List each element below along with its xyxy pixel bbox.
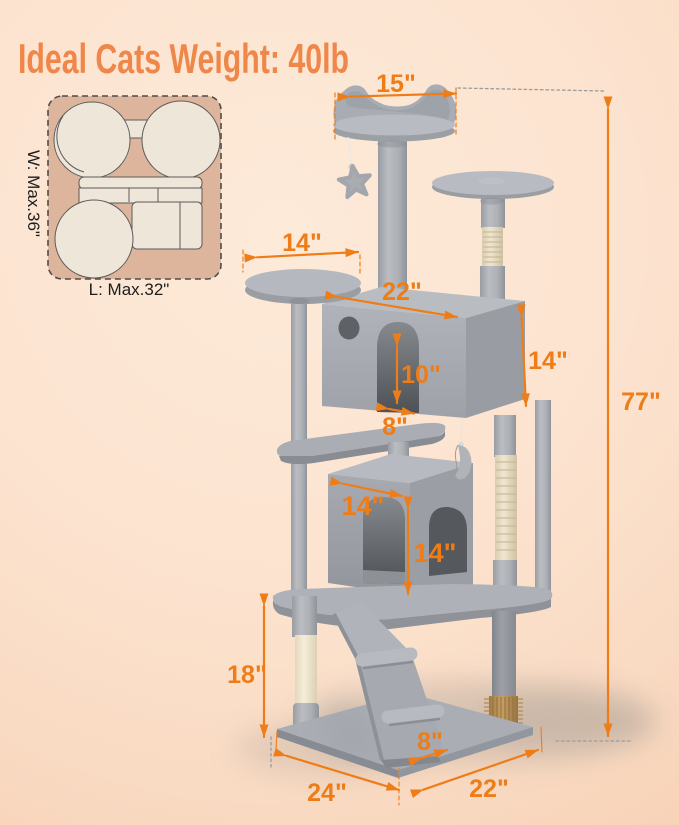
svg-text:10": 10"	[401, 361, 441, 389]
svg-text:W: Max.36": W: Max.36"	[24, 150, 43, 237]
svg-text:24": 24"	[307, 779, 347, 807]
svg-text:18": 18"	[227, 661, 267, 689]
svg-text:8": 8"	[382, 413, 408, 441]
svg-text:14": 14"	[342, 491, 385, 521]
svg-text:L: Max.32": L: Max.32"	[89, 280, 170, 299]
svg-text:15": 15"	[376, 70, 416, 98]
svg-text:Ideal Cats Weight: 40lb: Ideal Cats Weight: 40lb	[18, 35, 349, 82]
svg-text:22": 22"	[382, 278, 422, 306]
svg-text:14": 14"	[414, 538, 457, 568]
svg-text:8": 8"	[417, 728, 443, 756]
svg-text:77": 77"	[621, 388, 661, 416]
svg-text:14": 14"	[528, 347, 568, 375]
svg-text:22": 22"	[469, 775, 509, 803]
svg-text:14": 14"	[282, 229, 322, 257]
